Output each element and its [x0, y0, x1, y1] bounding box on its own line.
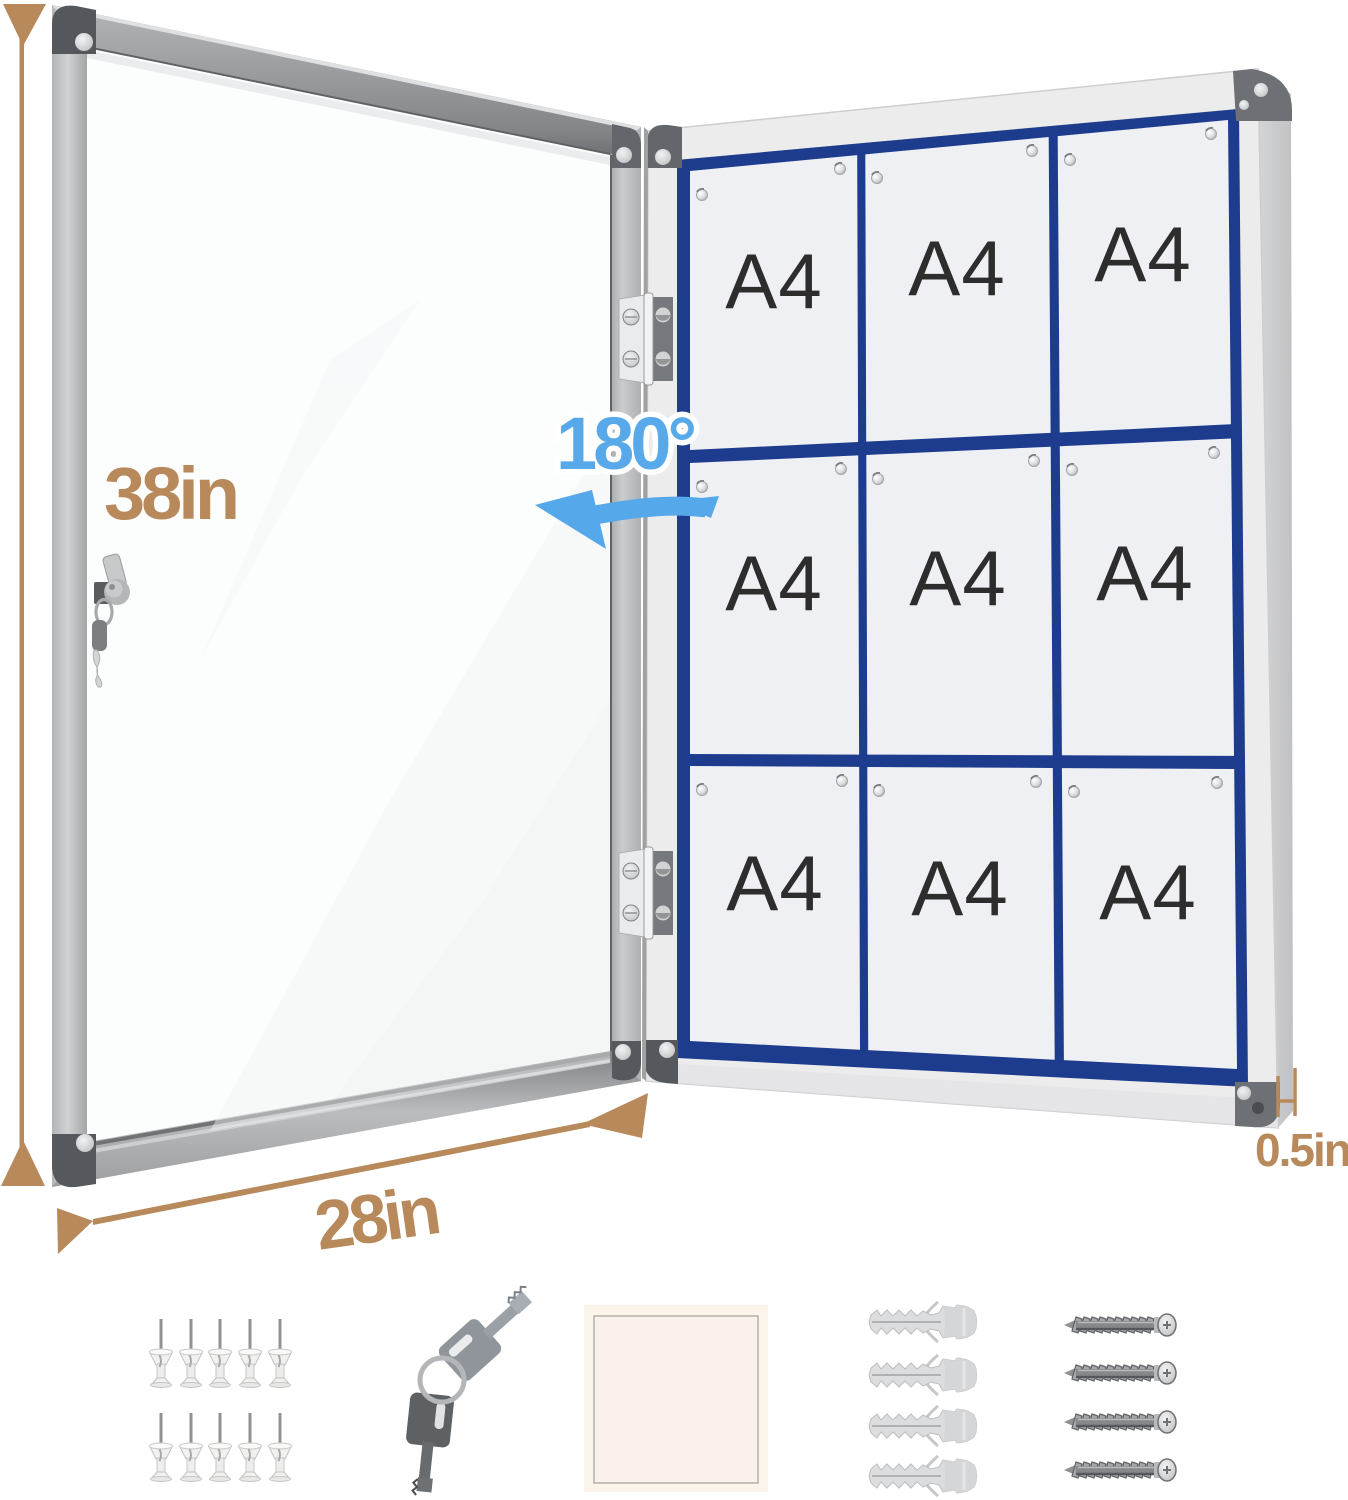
- svg-text:38in: 38in: [104, 452, 236, 535]
- svg-text:A4: A4: [725, 237, 822, 325]
- svg-text:180°: 180°: [556, 402, 694, 485]
- svg-text:A4: A4: [725, 539, 822, 627]
- svg-text:0.5in: 0.5in: [1255, 1124, 1348, 1176]
- svg-text:A4: A4: [911, 844, 1008, 932]
- svg-text:A4: A4: [726, 839, 823, 927]
- svg-text:A4: A4: [909, 534, 1006, 622]
- svg-text:A4: A4: [1094, 210, 1191, 298]
- svg-text:A4: A4: [1096, 529, 1193, 617]
- svg-text:A4: A4: [1099, 848, 1196, 936]
- svg-text:A4: A4: [908, 224, 1005, 312]
